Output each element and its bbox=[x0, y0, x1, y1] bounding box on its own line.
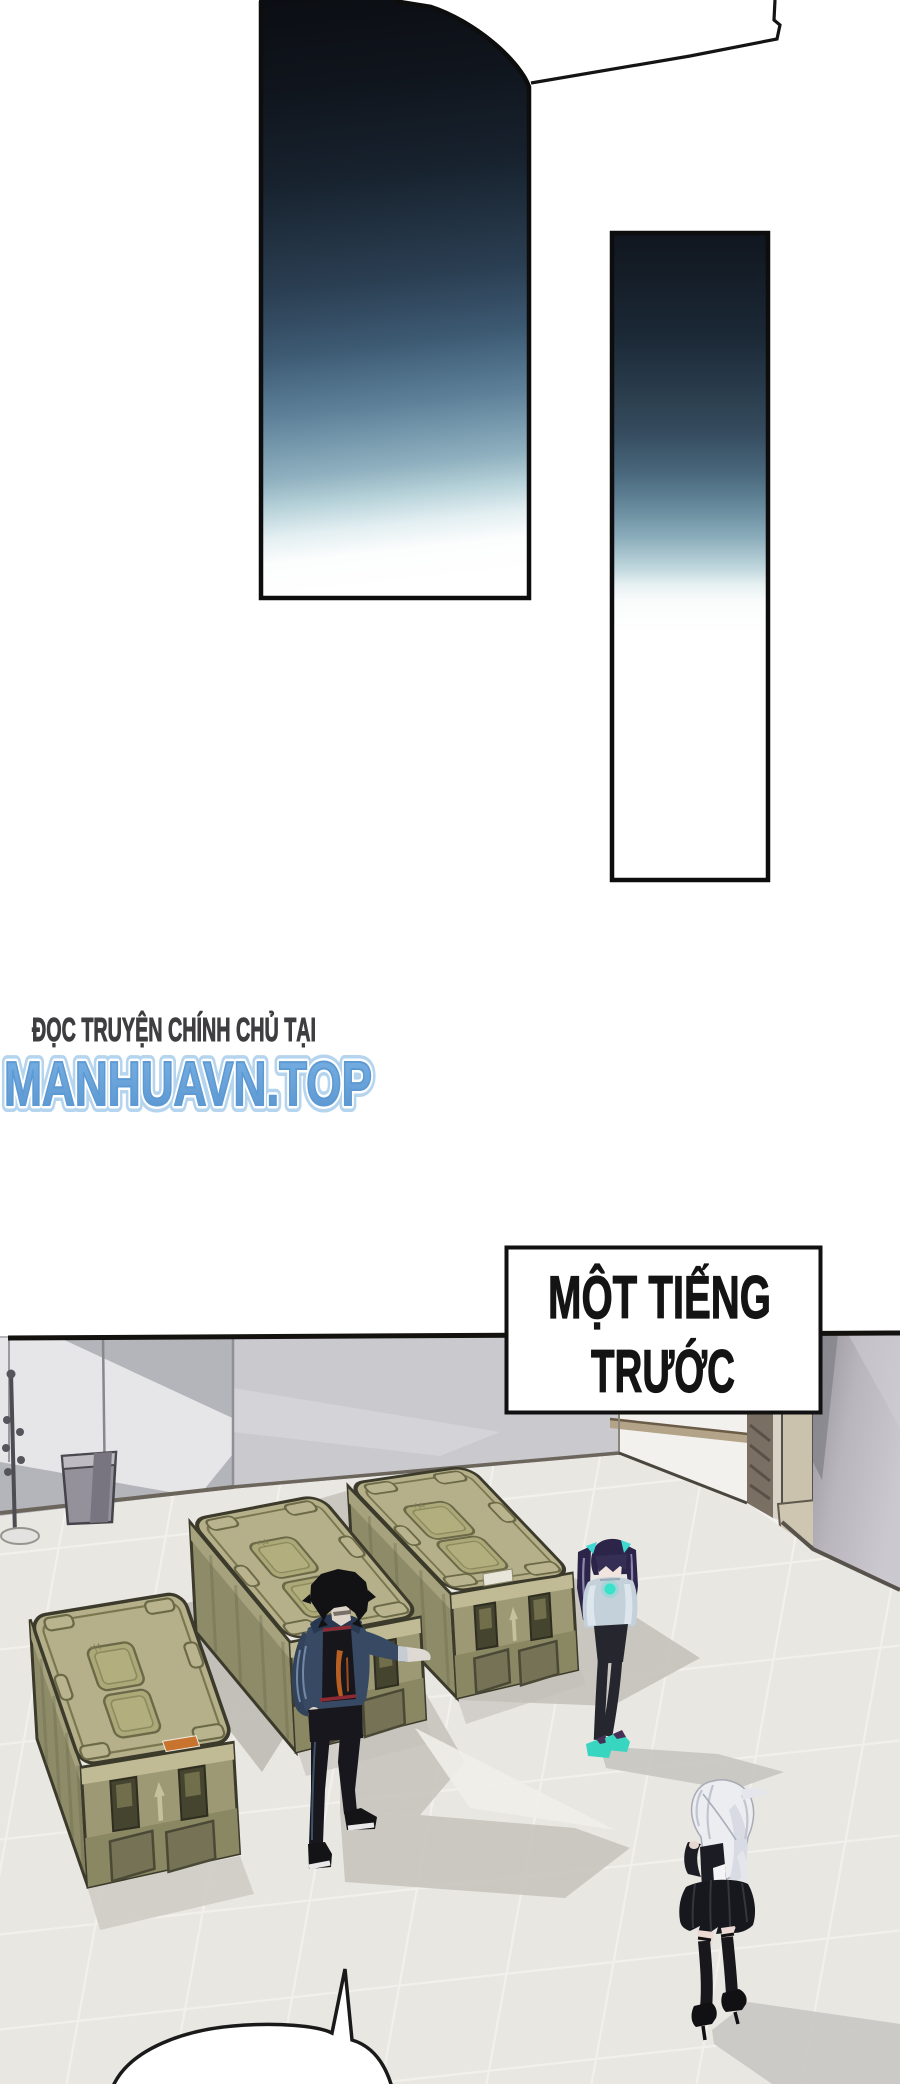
svg-text:MỘT TIẾNG: MỘT TIẾNG bbox=[548, 1264, 771, 1331]
svg-text:TRƯỚC: TRƯỚC bbox=[591, 1338, 735, 1405]
svg-text:MANHUAVN.TOP: MANHUAVN.TOP bbox=[4, 1050, 372, 1119]
svg-text:ĐỌC TRUYỆN CHÍNH CHỦ TẠI: ĐỌC TRUYỆN CHÍNH CHỦ TẠI bbox=[32, 1011, 316, 1048]
